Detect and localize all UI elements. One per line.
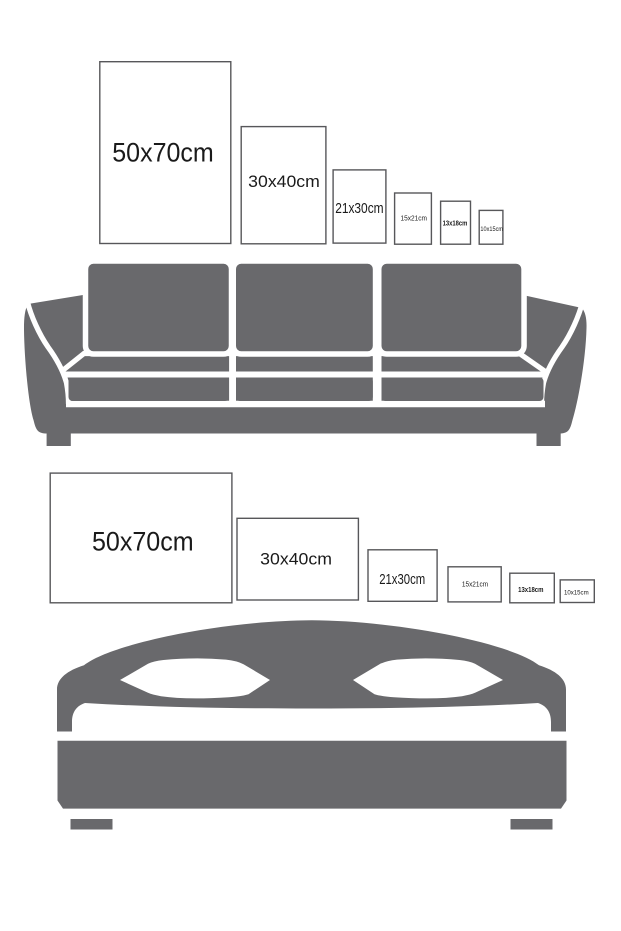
svg-text:15x21cm: 15x21cm	[462, 582, 488, 589]
svg-text:13x18cm: 13x18cm	[443, 219, 468, 228]
svg-text:10x15cm: 10x15cm	[480, 226, 503, 233]
svg-text:13x18cm: 13x18cm	[518, 585, 544, 594]
svg-text:30x40cm: 30x40cm	[248, 172, 320, 191]
svg-text:50x70cm: 50x70cm	[92, 526, 194, 556]
svg-text:30x40cm: 30x40cm	[260, 550, 332, 569]
svg-text:21x30cm: 21x30cm	[335, 201, 383, 217]
svg-text:15x21cm: 15x21cm	[400, 216, 427, 223]
svg-text:21x30cm: 21x30cm	[379, 572, 425, 588]
svg-text:10x15cm: 10x15cm	[564, 589, 589, 596]
svg-text:50x70cm: 50x70cm	[112, 138, 214, 168]
